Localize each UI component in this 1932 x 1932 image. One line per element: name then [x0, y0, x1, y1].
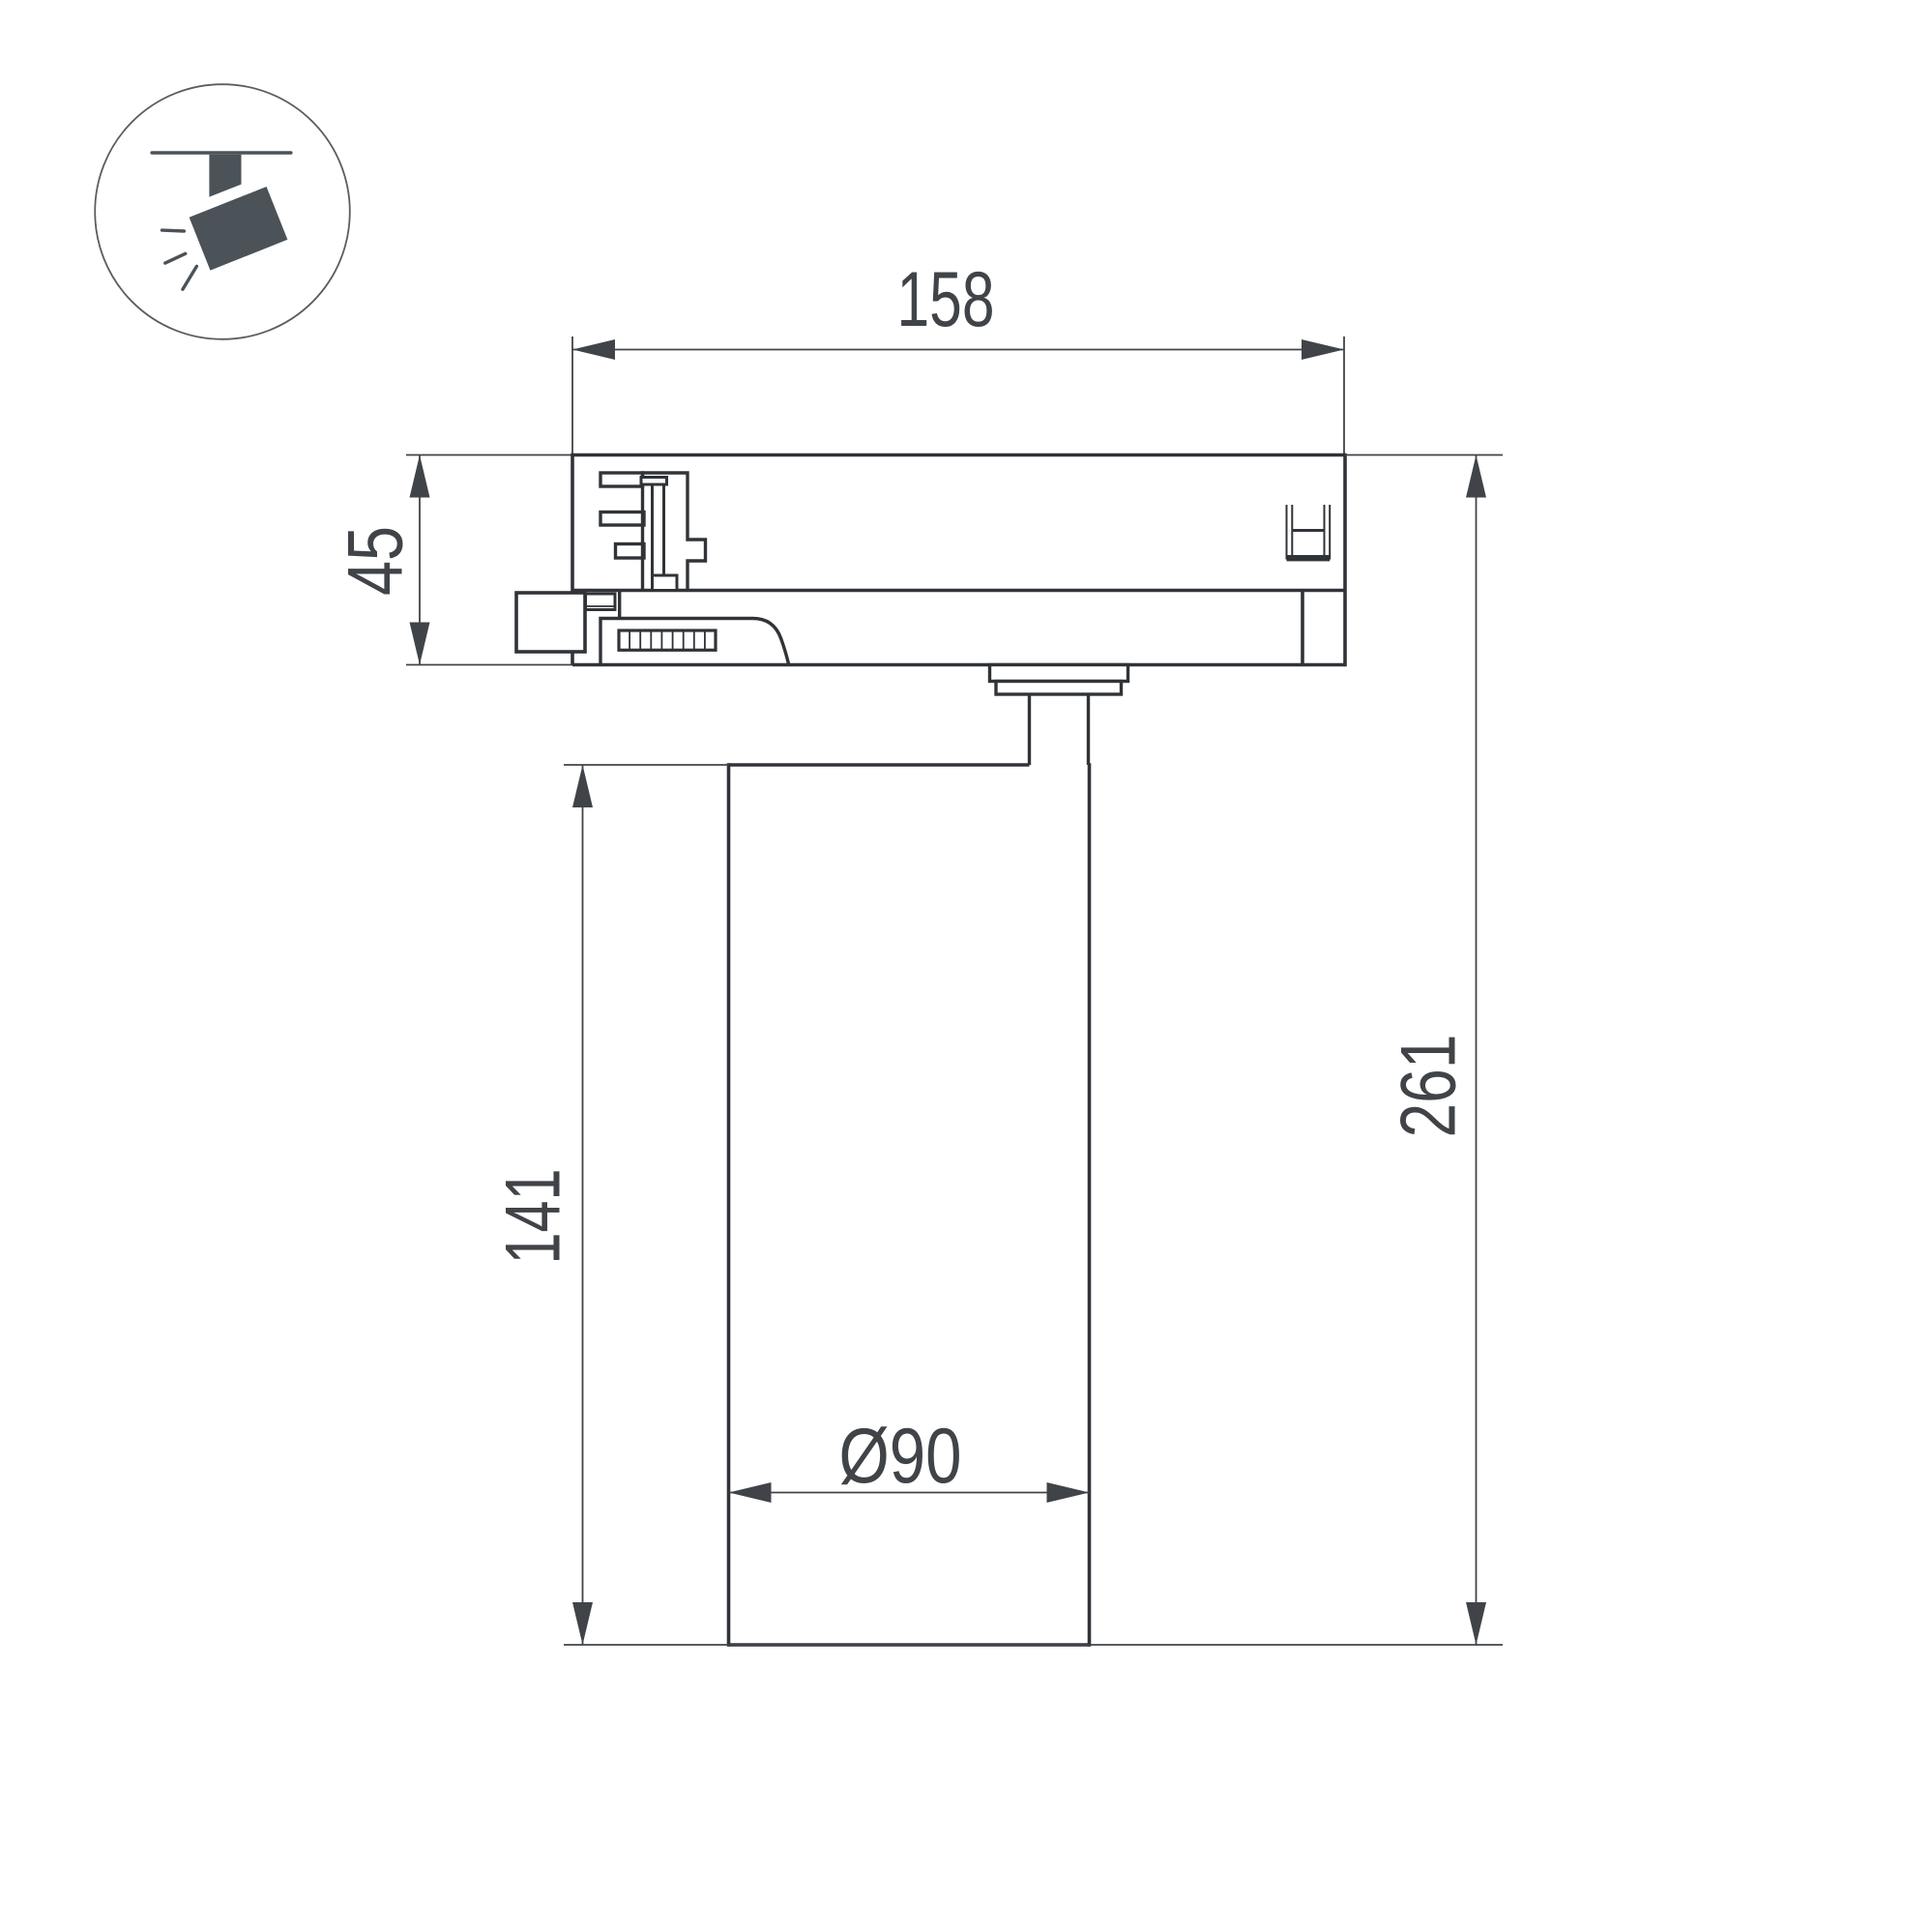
svg-text:Ø90: Ø90 — [839, 1413, 962, 1500]
svg-text:261: 261 — [1386, 1035, 1473, 1138]
svg-text:158: 158 — [897, 256, 995, 343]
svg-text:141: 141 — [490, 1169, 577, 1265]
svg-text:45: 45 — [333, 526, 420, 596]
